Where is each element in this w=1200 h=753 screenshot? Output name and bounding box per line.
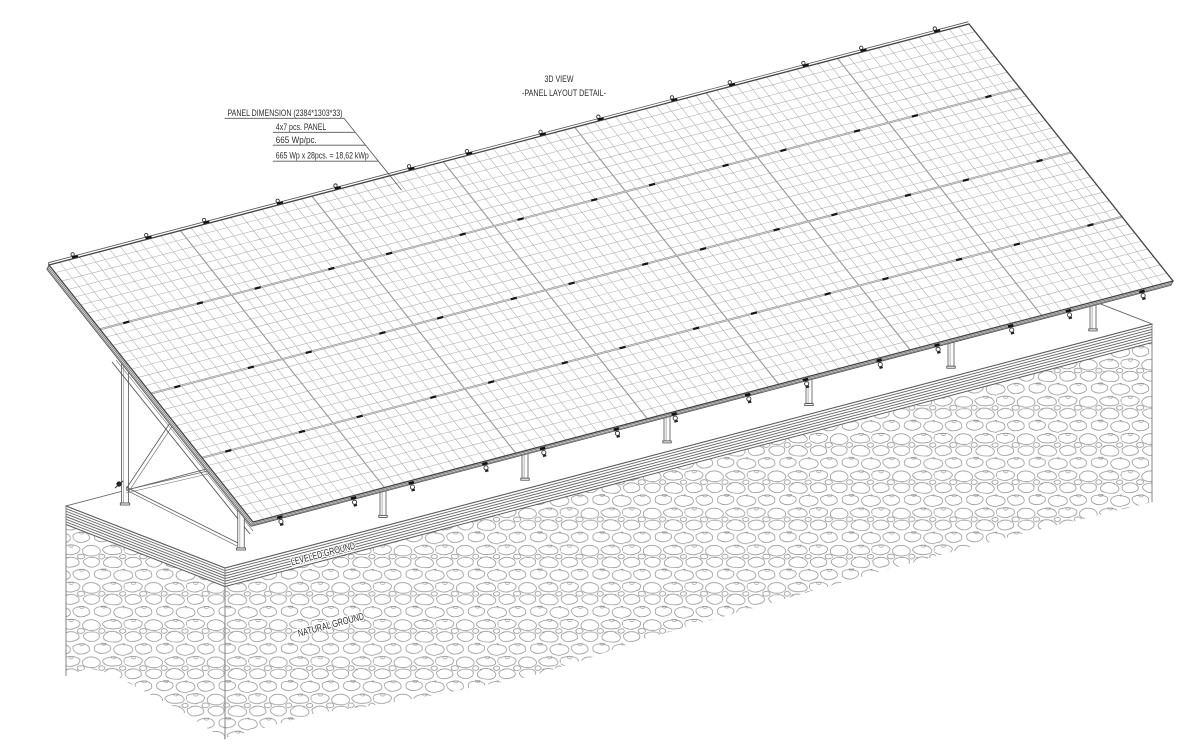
- svg-text:3D VIEW: 3D VIEW: [545, 74, 574, 85]
- svg-text:665 Wp/pc.: 665 Wp/pc.: [276, 135, 317, 146]
- svg-text:-PANEL LAYOUT DETAIL-: -PANEL LAYOUT DETAIL-: [522, 88, 606, 99]
- svg-text:665 Wp x 28pcs. = 18,62 kWp: 665 Wp x 28pcs. = 18,62 kWp: [276, 151, 369, 162]
- svg-text:PANEL DIMENSION (2384*1303*33): PANEL DIMENSION (2384*1303*33): [228, 108, 343, 119]
- svg-text:4x7 pcs. PANEL: 4x7 pcs. PANEL: [276, 122, 327, 133]
